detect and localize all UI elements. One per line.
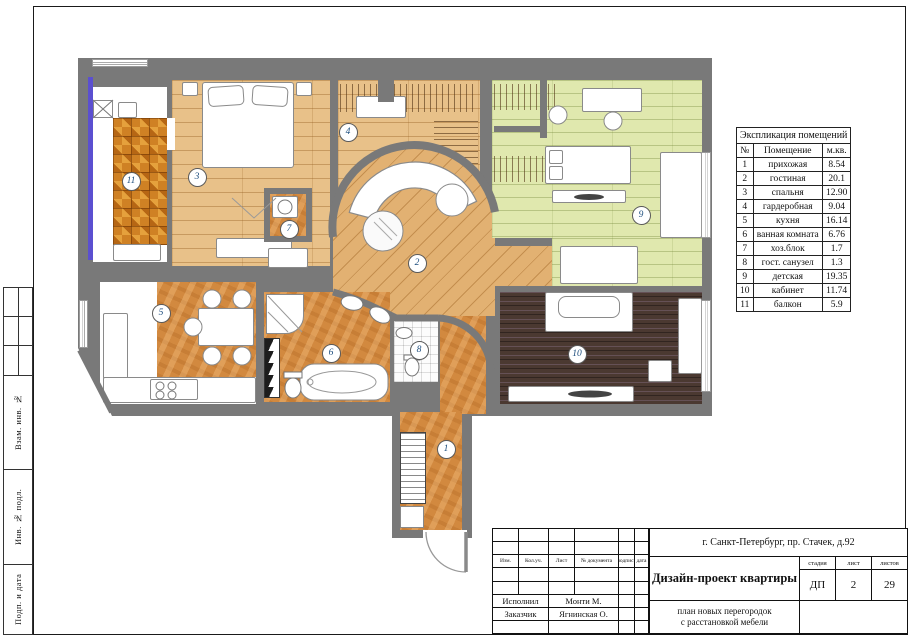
window	[701, 300, 711, 392]
shelving-rack	[264, 338, 280, 398]
room-badge-5: 5	[152, 304, 171, 323]
pillow	[251, 85, 288, 107]
sheet-value: 2	[835, 570, 871, 601]
nightstand	[182, 82, 198, 96]
room-badge-9: 9	[632, 206, 651, 225]
room-badge-2: 2	[408, 254, 427, 273]
window	[701, 152, 711, 238]
col-name: Помещение	[753, 144, 822, 158]
room-badge-6: 6	[322, 344, 341, 363]
stage-label: стадия	[799, 557, 835, 570]
col-area: м.кв.	[822, 144, 851, 158]
room-legend-table: Экспликация помещений № Помещение м.кв. …	[736, 127, 851, 312]
room-badge-11: 11	[122, 172, 141, 191]
table-row: 11балкон5.9	[737, 298, 851, 312]
table-row: 9детская19.35	[737, 270, 851, 284]
room-badge-3: 3	[188, 168, 207, 187]
table-row: 6ванная комната6.76	[737, 228, 851, 242]
title-block-revision-grid: Изм. Кол.уч. Лист № документа подпись да…	[493, 529, 649, 634]
stamp-side-box	[3, 345, 33, 376]
client-label: Заказчик	[493, 608, 549, 621]
stove	[150, 379, 198, 400]
room-badge-8: 8	[410, 341, 429, 360]
legend-title-row: Экспликация помещений	[737, 128, 851, 144]
washing-machine	[272, 196, 298, 218]
room-badge-4: 4	[339, 123, 358, 142]
col-data: дата	[635, 555, 649, 568]
balcony-cabinet	[118, 102, 137, 118]
room-living	[333, 148, 495, 316]
window	[92, 59, 148, 67]
fridge	[103, 313, 128, 379]
table-row: 2гостиная20.1	[737, 172, 851, 186]
wardrobe-cabinet	[660, 152, 702, 238]
executor-label: Исполнил	[493, 595, 549, 608]
table-row: 5кухня16.14	[737, 214, 851, 228]
table-row: 1прихожая8.54	[737, 158, 851, 172]
window	[79, 300, 88, 348]
room-badge-1: 1	[437, 440, 456, 459]
hanger-rail	[494, 84, 558, 110]
side-label: Подп. и дата	[4, 565, 32, 634]
wall-stub	[378, 80, 394, 102]
cabinet	[648, 360, 672, 382]
col-koluch: Кол.уч.	[519, 555, 549, 568]
col-list: Лист	[549, 555, 575, 568]
pillow	[558, 296, 620, 318]
side-label: Инв. № подл.	[4, 470, 32, 564]
stamp-side-box-podp: Подп. и дата	[3, 564, 33, 635]
title-block: Изм. Кол.уч. Лист № документа подпись да…	[492, 528, 908, 635]
wardrobe-cabinet	[678, 298, 702, 374]
hall-niche	[400, 506, 424, 528]
room-hallway-upper	[440, 316, 486, 414]
table-row: 4гардеробная9.04	[737, 200, 851, 214]
hall-wardrobe	[400, 432, 426, 504]
project-title: Дизайн-проект квартиры	[649, 557, 799, 601]
sheet-label: лист	[835, 557, 871, 570]
balcony-door-opening	[167, 118, 175, 150]
balcony-bench	[113, 244, 161, 261]
legend-header-row: № Помещение м.кв.	[737, 144, 851, 158]
subtitle-line1: план новых перегородок	[677, 606, 771, 617]
shower	[266, 294, 304, 334]
tv-stand	[552, 190, 626, 203]
pillow	[549, 150, 563, 164]
legend-title: Экспликация помещений	[737, 128, 851, 144]
side-label: Взам. инв. №	[4, 376, 32, 469]
executor-value: Монти М.	[549, 595, 619, 608]
stamp-side-box	[3, 316, 33, 346]
project-address: г. Санкт-Петербург, пр. Стачек, д.92	[649, 529, 907, 557]
table-row: 10кабинет11.74	[737, 284, 851, 298]
room-badge-10: 10	[568, 345, 587, 364]
balcony-window-box	[93, 100, 113, 118]
desk	[508, 386, 634, 402]
entry-door-opening	[423, 530, 467, 538]
nightstand	[296, 82, 312, 96]
col-podpis: подпись	[619, 555, 635, 568]
drawing-subtitle: план новых перегородок с расстановкой ме…	[649, 601, 799, 634]
table-row: 3спальня12.90	[737, 186, 851, 200]
client-value: Ягнинская О.	[549, 608, 619, 621]
sofa	[560, 246, 638, 284]
table-row: 7хоз.блок1.7	[737, 242, 851, 256]
corridor	[474, 246, 552, 286]
dining-table	[198, 308, 254, 346]
subtitle-line2: с расстановкой мебели	[681, 617, 768, 628]
stage-value: ДП	[799, 570, 835, 601]
utility-cabinet	[268, 248, 308, 268]
col-num: №	[737, 144, 754, 158]
closet-wall	[494, 126, 546, 132]
title-block-empty-cell	[799, 601, 907, 634]
col-izm: Изм.	[493, 555, 519, 568]
col-docnum: № документа	[575, 555, 619, 568]
table-row: 8гост. санузел1.3	[737, 256, 851, 270]
desk	[582, 88, 642, 112]
sheets-label: листов	[871, 557, 907, 570]
stamp-side-box	[3, 287, 33, 317]
stamp-side-box-inv: Инв. № подл.	[3, 469, 33, 565]
stamp-side-box-vzam: Взам. инв. №	[3, 375, 33, 470]
room-badge-7: 7	[280, 220, 299, 239]
pillow	[207, 85, 244, 107]
drawing-sheet: Взам. инв. № Инв. № подл. Подп. и дата	[0, 0, 910, 640]
pillow	[549, 166, 563, 180]
sheets-value: 29	[871, 570, 907, 601]
